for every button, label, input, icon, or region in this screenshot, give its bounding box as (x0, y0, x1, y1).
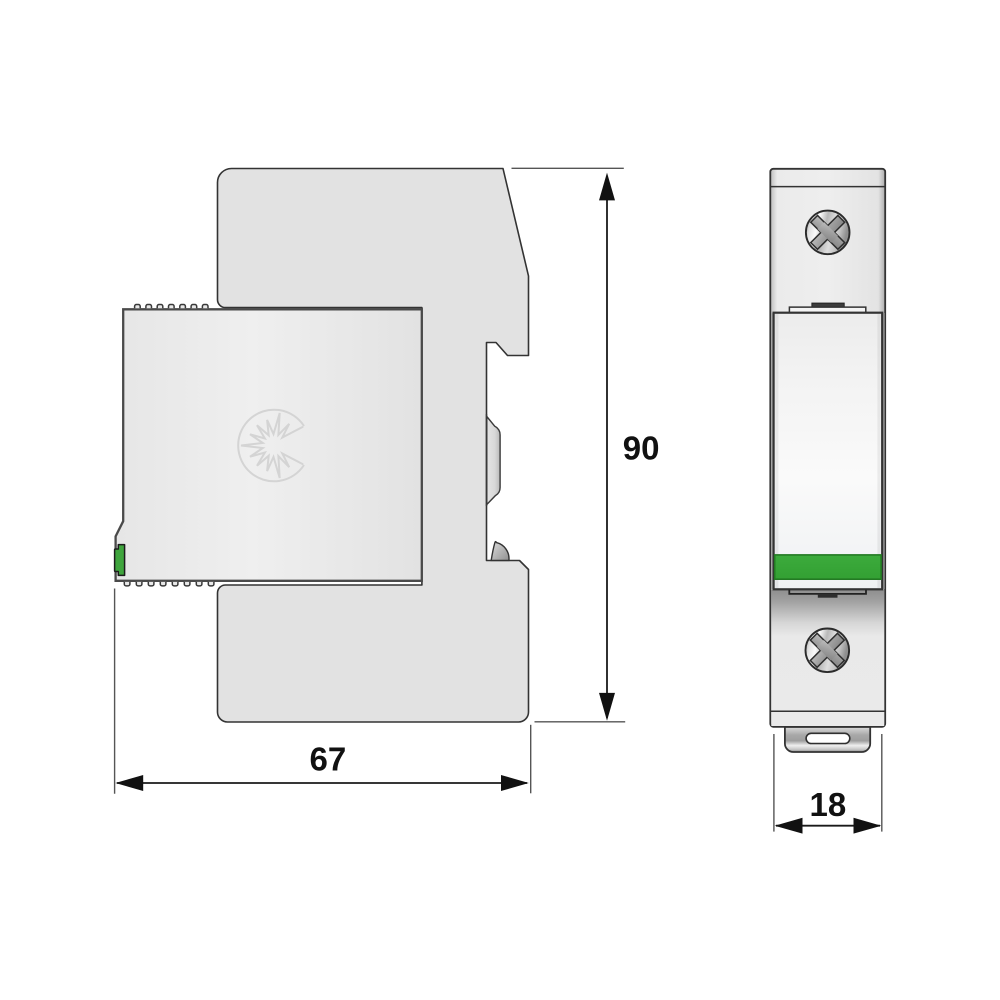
svg-text:67: 67 (310, 741, 347, 778)
svg-text:90: 90 (623, 430, 660, 467)
svg-text:18: 18 (810, 786, 847, 823)
